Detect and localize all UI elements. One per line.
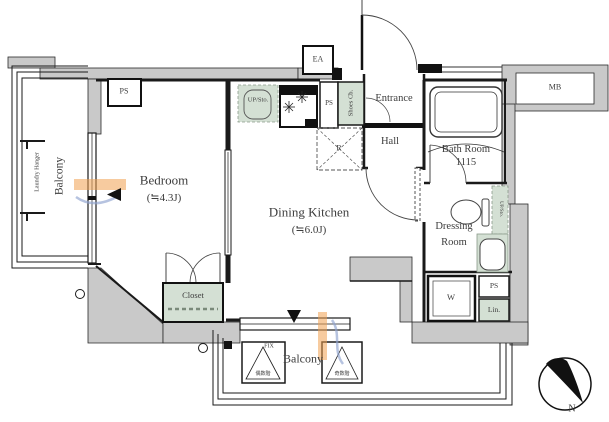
hatch-odd-floors-label: 奇数階	[334, 372, 349, 378]
watermark-left	[74, 179, 126, 203]
floor-plan: PS Laundry Hanger Balcony Bedroom (≒4.3J…	[0, 0, 609, 422]
laundry-hanger-label: Laundry Hanger	[35, 152, 42, 192]
closet-label: Closet	[182, 291, 204, 301]
bathtub-icon	[428, 87, 504, 152]
compass-north-label: N	[568, 403, 575, 414]
linen-label: Lin.	[488, 306, 500, 314]
hatch-even-floors-label: 偶数階	[255, 372, 270, 378]
dining-kitchen-label: Dining Kitchen	[269, 206, 350, 221]
kitchen-unit	[280, 86, 317, 127]
closet-box	[163, 283, 223, 322]
washer-label: W	[447, 293, 455, 303]
doors	[166, 0, 466, 283]
bath-room-size-label: 1115	[456, 157, 476, 169]
mb-label: MB	[549, 84, 561, 93]
sliding-door	[225, 150, 231, 255]
compass-icon	[539, 358, 591, 410]
bedroom-size-label: (≒4.3J)	[147, 192, 182, 204]
corridor-lines	[441, 67, 502, 72]
balcony-left-railing	[12, 66, 88, 268]
up-sto-kitchen-label: UP/Sto.	[248, 96, 268, 103]
hall-label: Hall	[381, 136, 399, 148]
ea-label: EA	[313, 56, 324, 65]
ps-kitchen-label: PS	[325, 100, 333, 108]
shoes-cabinet-label: Shoes Cb.	[347, 88, 354, 118]
balcony-left-label: Balcony	[54, 157, 67, 195]
up-sto-dressing-label: UP/Sto.	[497, 201, 503, 217]
dressing-room-label-2: Room	[441, 237, 467, 249]
bedroom-label: Bedroom	[140, 174, 188, 189]
ps-top-label: PS	[120, 88, 129, 97]
dining-kitchen-size-label: (≒6.0J)	[292, 224, 327, 236]
refrigerator-label: R	[336, 145, 341, 154]
dressing-room-label-1: Dressing	[435, 221, 472, 233]
ps-lower-label: PS	[490, 282, 498, 290]
bath-room-label: Bath Room	[442, 144, 490, 156]
washbasin-icon	[480, 239, 505, 270]
fix-window-label: FIX	[264, 344, 274, 351]
balcony-bottom-label: Balcony	[283, 352, 323, 365]
entrance-label: Entrance	[375, 93, 412, 105]
